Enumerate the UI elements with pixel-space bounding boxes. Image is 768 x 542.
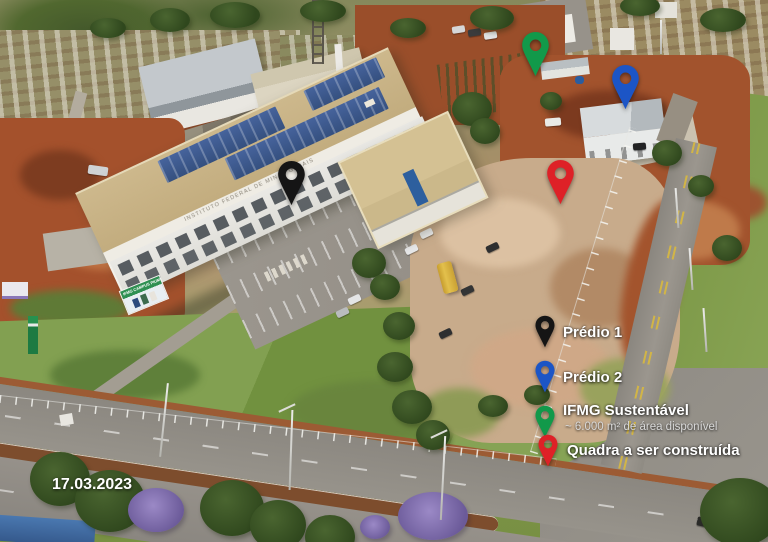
tree bbox=[90, 18, 126, 38]
bush bbox=[540, 92, 562, 110]
map-pin-predio-1 bbox=[276, 160, 307, 206]
pin-shape bbox=[522, 32, 549, 76]
pin-shape bbox=[612, 65, 639, 109]
pin-shape bbox=[535, 361, 554, 393]
purple-tree bbox=[360, 515, 390, 539]
truck bbox=[545, 117, 562, 126]
banner-people bbox=[132, 298, 141, 309]
pin-shape bbox=[535, 316, 554, 348]
tree bbox=[390, 18, 426, 38]
purple-tree bbox=[398, 492, 468, 540]
tree bbox=[688, 175, 714, 197]
tree bbox=[712, 235, 742, 261]
tree bbox=[700, 478, 768, 542]
purple-tree bbox=[128, 488, 184, 532]
legend-pin-predio-2 bbox=[534, 360, 556, 393]
car bbox=[633, 142, 647, 150]
map-pin-ifmg-sustentavel bbox=[520, 31, 551, 77]
tree bbox=[470, 6, 514, 30]
water-tank bbox=[575, 76, 584, 84]
campus-totem-sign bbox=[28, 316, 38, 354]
pin-shape bbox=[547, 160, 574, 204]
pin-shape bbox=[278, 161, 305, 205]
tree bbox=[377, 352, 413, 382]
legend-label-quadra: Quadra a ser construída bbox=[567, 443, 740, 460]
legend-label-predio-2: Prédio 2 bbox=[563, 370, 622, 387]
map-pin-predio-2 bbox=[610, 64, 641, 110]
gate-hut bbox=[59, 413, 74, 426]
tree bbox=[392, 390, 432, 424]
tree bbox=[470, 118, 500, 144]
legend-label-ifmg-sustentavel: IFMG Sustentável bbox=[563, 403, 689, 420]
pin-shape bbox=[535, 406, 554, 438]
tree bbox=[300, 0, 346, 22]
tree bbox=[652, 140, 682, 166]
tree bbox=[210, 2, 260, 28]
legend-pin-predio-1 bbox=[534, 315, 556, 348]
pin-shape bbox=[538, 435, 557, 467]
map-pin-quadra bbox=[545, 159, 576, 205]
legend-label-predio-1: Prédio 1 bbox=[563, 325, 622, 342]
bush bbox=[478, 395, 508, 417]
tree bbox=[370, 274, 400, 300]
aerial-photo: INSTITUTO FEDERAL DE MINAS GERAIS IFMG C… bbox=[0, 0, 768, 542]
utility-pole bbox=[660, 20, 662, 54]
blue-feature-wall bbox=[402, 169, 428, 207]
street-sign bbox=[2, 282, 28, 299]
white-building bbox=[610, 28, 634, 50]
tree bbox=[150, 8, 190, 32]
tree bbox=[700, 8, 746, 32]
banner-people bbox=[140, 293, 149, 305]
legend-sublabel-ifmg-sustentavel: ~ 6.000 m² de área disponível bbox=[565, 421, 717, 433]
legend-pin-quadra bbox=[537, 434, 559, 467]
tree bbox=[383, 312, 415, 340]
banner-people bbox=[149, 291, 158, 302]
tree bbox=[250, 500, 306, 542]
date-label: 17.03.2023 bbox=[52, 476, 132, 494]
